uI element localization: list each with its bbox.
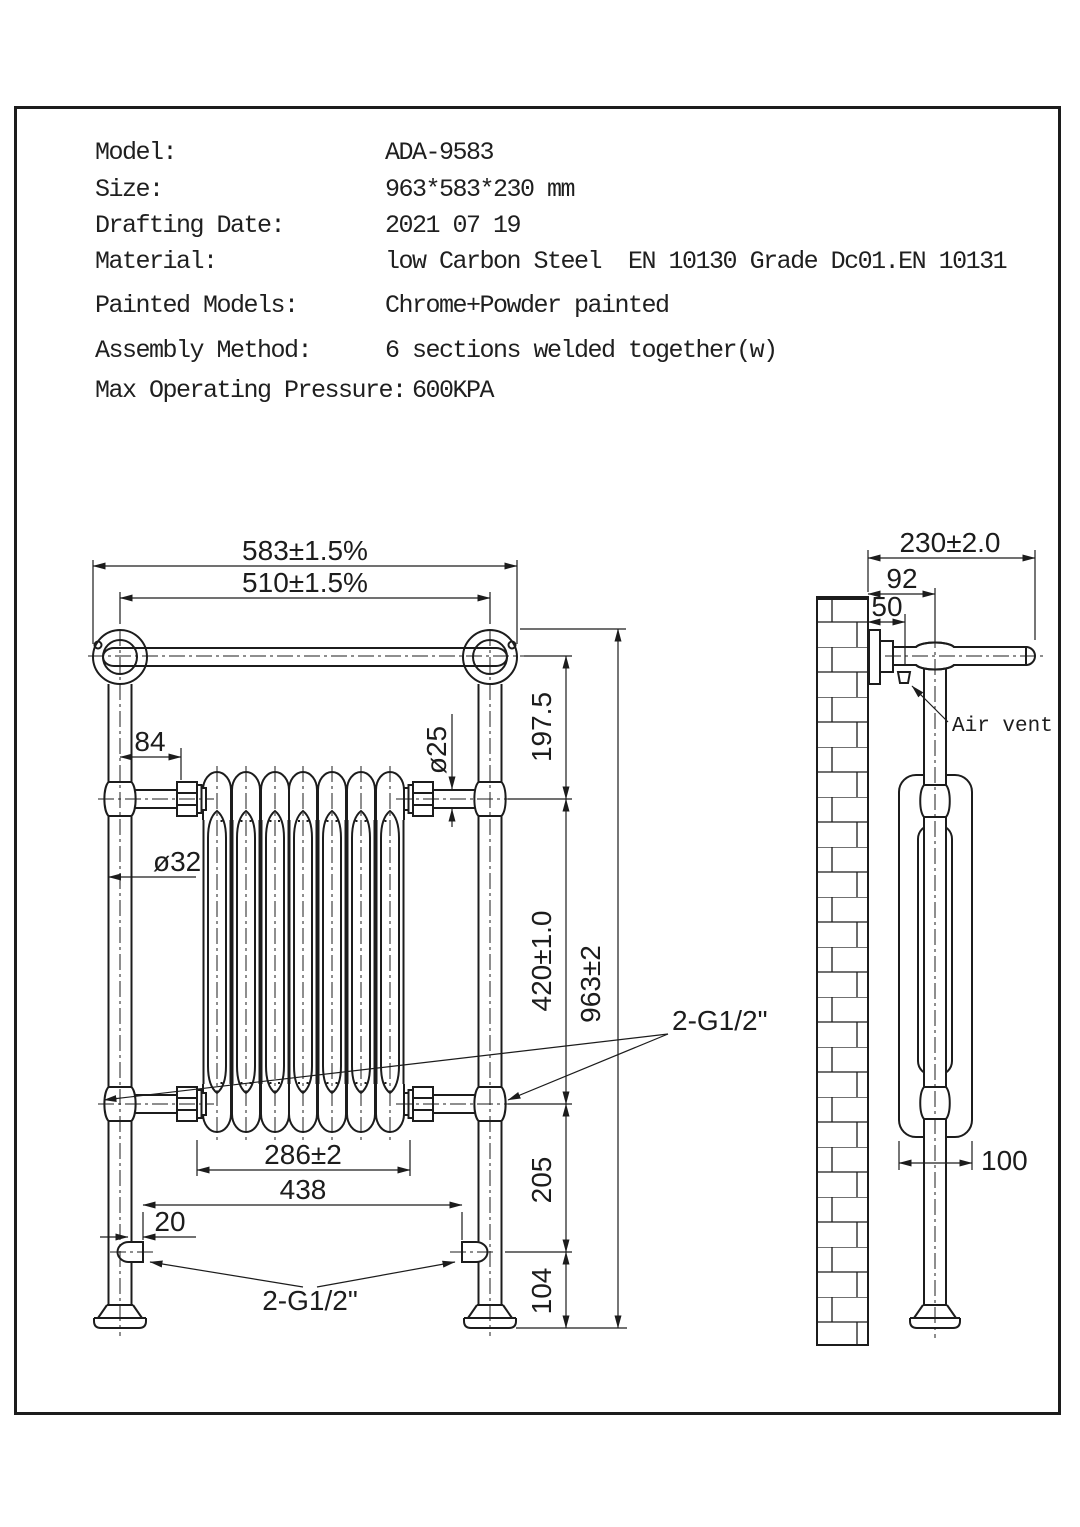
dim-inlet-offset: 20 [154, 1206, 185, 1237]
label-mid-connection: 2-G1/2" [672, 1005, 768, 1036]
wall-flange [869, 630, 880, 684]
label-air-vent: Air vent [952, 715, 1053, 738]
dim-post-to-radiator: 84 [134, 726, 165, 757]
dim-radiator-depth: 100 [981, 1145, 1028, 1176]
drawing-page: Model: ADA-9583 Size: 963*583*230 mm Dra… [0, 0, 1080, 1527]
dim-inlet-to-floor: 104 [526, 1268, 557, 1315]
label-bottom-connection: 2-G1/2" [262, 1285, 358, 1316]
dim-inlet-span: 438 [280, 1174, 327, 1205]
technical-drawing: 583±1.5% 510±1.5% 84 ø32 ø25 197.5 420±1… [0, 0, 1080, 1527]
dim-bar-to-connector: 197.5 [526, 692, 557, 762]
dim-connector-span: 420±1.0 [526, 910, 557, 1011]
front-view: 583±1.5% 510±1.5% 84 ø32 ø25 197.5 420±1… [88, 535, 768, 1336]
dim-overall-depth: 230±2.0 [899, 527, 1000, 558]
side-towel-bar [869, 630, 1035, 684]
dim-radiator-width: 286±2 [264, 1139, 342, 1170]
dim-overall-width: 583±1.5% [242, 535, 368, 566]
dim-wall-to-post: 92 [886, 563, 917, 594]
dim-bar-centers-width: 510±1.5% [242, 567, 368, 598]
dim-post-diameter: ø32 [153, 846, 201, 877]
dim-connector-diameter: ø25 [421, 726, 452, 774]
front-dimensions: 583±1.5% 510±1.5% 84 ø32 ø25 197.5 420±1… [93, 535, 768, 1328]
side-dimensions: 230±2.0 92 50 100 Air vent [868, 527, 1053, 1176]
front-connector-tubes [132, 782, 479, 1121]
dim-wall-to-vent: 50 [871, 591, 902, 622]
dim-connector-to-inlet: 205 [526, 1157, 557, 1204]
dim-overall-height: 963±2 [575, 945, 606, 1023]
front-towel-bar [93, 630, 517, 684]
air-vent-fitting [898, 672, 910, 683]
side-wall [816, 597, 869, 1345]
side-view: 230±2.0 92 50 100 Air vent [816, 527, 1053, 1345]
